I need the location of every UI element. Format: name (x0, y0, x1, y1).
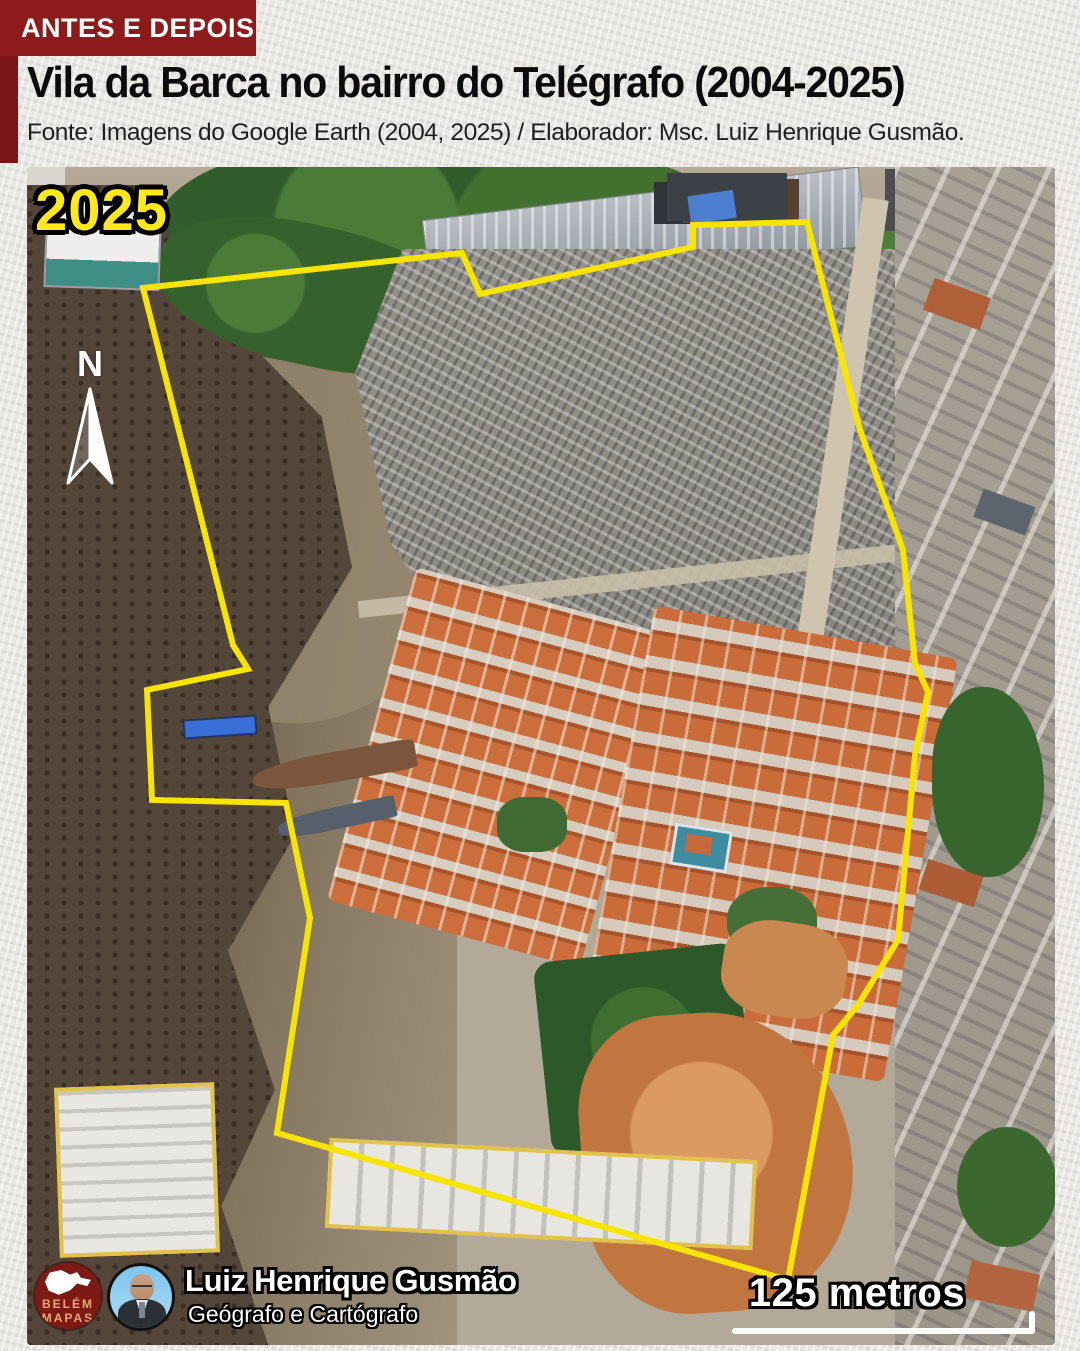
logo-map-silhouette-icon (45, 1270, 91, 1296)
avatar-glasses (132, 1285, 152, 1291)
before-after-badge: ANTES E DEPOIS (0, 0, 256, 56)
logo-text-line2: MAPAS (35, 1311, 101, 1325)
scale-bar-line (732, 1328, 1034, 1334)
page-title: Vila da Barca no bairro do Telégrafo (20… (27, 58, 1047, 108)
avatar-tie (139, 1302, 145, 1318)
author-name: Luiz Henrique Gusmão (185, 1263, 517, 1299)
logo-text-line1: BELÉM (35, 1297, 101, 1311)
north-arrow-icon (62, 387, 118, 491)
belem-mapas-logo: BELÉM MAPAS (35, 1263, 101, 1329)
scale-label: 125 metros (727, 1271, 987, 1316)
year-label: 2025 (35, 177, 168, 244)
author-avatar (107, 1263, 175, 1331)
area-boundary-polygon (27, 167, 1055, 1345)
author-role: Geógrafo e Cartógrafo (188, 1301, 418, 1328)
source-line: Fonte: Imagens do Google Earth (2004, 20… (27, 119, 1067, 147)
north-label: N (55, 343, 125, 385)
scale-bar-tick (1029, 1311, 1035, 1334)
satellite-map: 2025 N 125 metros BELÉM MAPAS Luiz Henri… (27, 167, 1055, 1345)
north-arrow: N (55, 343, 125, 491)
infographic-canvas: ANTES E DEPOIS Vila da Barca no bairro d… (0, 0, 1080, 1351)
